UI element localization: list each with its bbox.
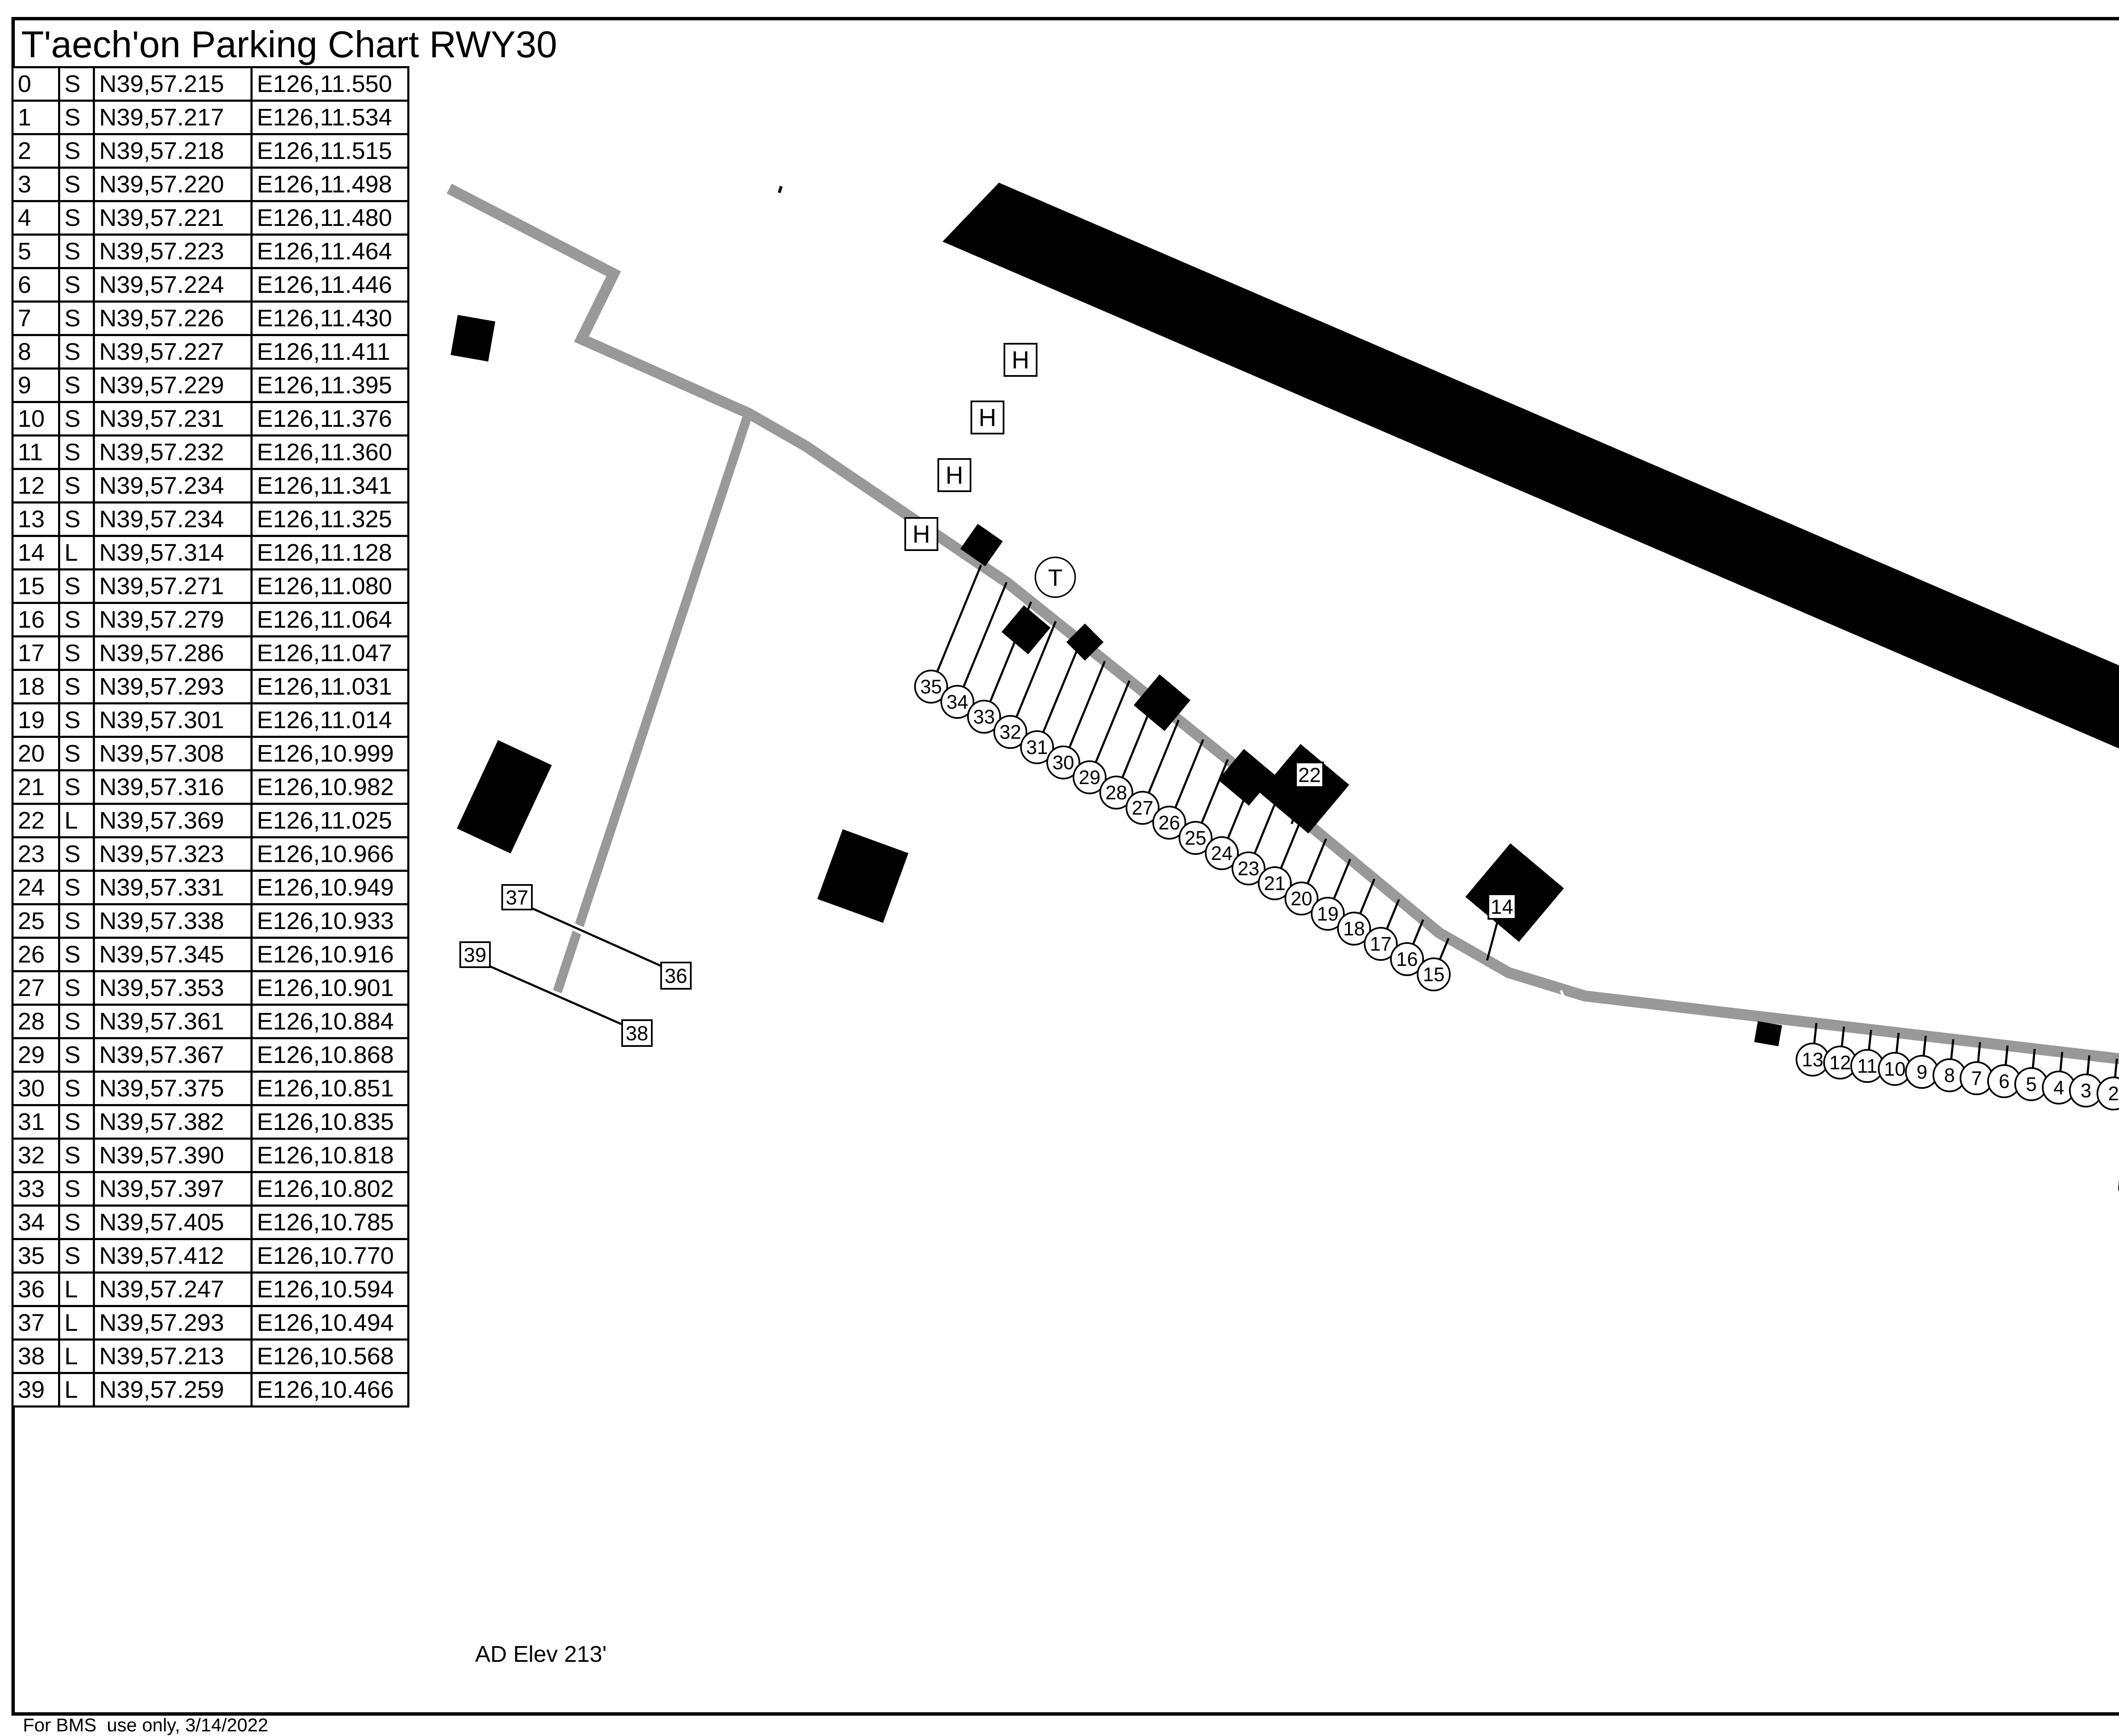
spot-id-cell: 26	[13, 938, 59, 971]
spot-type-cell: L	[59, 536, 94, 570]
table-row: 29SN39,57.367E126,10.868	[13, 1038, 409, 1072]
spot-id-cell: 14	[13, 536, 59, 570]
spot-id-cell: 12	[13, 469, 59, 503]
spot-type-cell: S	[59, 402, 94, 436]
table-row: 34SN39,57.405E126,10.785	[13, 1206, 409, 1239]
parking-spot-number: 17	[1370, 933, 1391, 955]
longitude-cell: E126,10.770	[252, 1239, 409, 1273]
helipad-letter: H	[912, 520, 930, 548]
parking-spot-number: 33	[973, 706, 995, 728]
spot-type-cell: S	[59, 235, 94, 268]
parking-spot-number: 31	[1026, 736, 1048, 758]
spot-id-cell: 35	[13, 1239, 59, 1273]
longitude-cell: E126,11.395	[252, 369, 409, 402]
spot-id-cell: 6	[13, 268, 59, 302]
longitude-cell: E126,11.464	[252, 235, 409, 268]
parking-spot-number: 18	[1343, 918, 1365, 940]
spot-type-cell: S	[59, 335, 94, 369]
longitude-cell: E126,10.949	[252, 871, 409, 904]
spot-id-cell: 27	[13, 971, 59, 1005]
spot-id-cell: 9	[13, 369, 59, 402]
building	[457, 740, 552, 854]
parking-spot-number: 35	[920, 676, 942, 698]
table-row: 33SN39,57.397E126,10.802	[13, 1172, 409, 1206]
parking-spot-number: 2	[2108, 1082, 2119, 1104]
table-row: 39LN39,57.259E126,10.466	[13, 1373, 409, 1407]
taxiway-tick	[1536, 988, 1543, 1001]
longitude-cell: E126,11.515	[252, 134, 409, 168]
latitude-cell: N39,57.232	[94, 436, 252, 469]
parking-spot-number: 13	[1802, 1049, 1823, 1071]
page-title: T'aech'on Parking Chart RWY30	[21, 23, 557, 66]
longitude-cell: E126,11.411	[252, 335, 409, 369]
parking-spot-number: 23	[1237, 857, 1259, 879]
latitude-cell: N39,57.229	[94, 369, 252, 402]
building	[450, 315, 495, 362]
spot-id-cell: 22	[13, 804, 59, 837]
spot-type-cell: S	[59, 1239, 94, 1273]
parking-spot-number: 30	[1052, 751, 1074, 773]
longitude-cell: E126,11.031	[252, 670, 409, 704]
longitude-cell: E126,10.835	[252, 1105, 409, 1139]
parking-spot-number: 25	[1185, 827, 1206, 849]
parking-spot-number: 27	[1132, 797, 1153, 819]
latitude-cell: N39,57.215	[94, 67, 252, 101]
table-row: 35SN39,57.412E126,10.770	[13, 1239, 409, 1273]
latitude-cell: N39,57.279	[94, 603, 252, 637]
taxiway-branch	[557, 413, 748, 992]
latitude-cell: N39,57.224	[94, 268, 252, 302]
spot-type-cell: S	[59, 971, 94, 1005]
helipad-letter: H	[1012, 346, 1029, 374]
latitude-cell: N39,57.345	[94, 938, 252, 971]
spot-type-cell: S	[59, 369, 94, 402]
parking-spot-number: 24	[1211, 842, 1232, 864]
spot-type-cell: L	[59, 804, 94, 837]
parking-spot-number: 7	[1971, 1067, 1982, 1089]
table-row: 27SN39,57.353E126,10.901	[13, 971, 409, 1005]
table-row: 31SN39,57.382E126,10.835	[13, 1105, 409, 1139]
parking-spot-number: 3	[2080, 1079, 2091, 1102]
spot-id-cell: 30	[13, 1072, 59, 1105]
table-row: 5SN39,57.223E126,11.464	[13, 235, 409, 268]
spot-id-cell: 31	[13, 1105, 59, 1139]
spot-id-cell: 20	[13, 737, 59, 771]
footer-note: For BMS use only, 3/14/2022	[23, 1715, 268, 1736]
spot-label-text: 22	[1298, 764, 1321, 787]
longitude-cell: E126,11.550	[252, 67, 409, 101]
spot-type-cell: S	[59, 771, 94, 804]
table-row: 24SN39,57.331E126,10.949	[13, 871, 409, 904]
longitude-cell: E126,10.785	[252, 1206, 409, 1239]
parking-spot-number: 21	[1264, 872, 1285, 894]
latitude-cell: N39,57.314	[94, 536, 252, 570]
longitude-cell: E126,11.325	[252, 503, 409, 536]
table-row: 4SN39,57.221E126,11.480	[13, 201, 409, 235]
longitude-cell: E126,10.868	[252, 1038, 409, 1072]
latitude-cell: N39,57.367	[94, 1038, 252, 1072]
table-row: 10SN39,57.231E126,11.376	[13, 402, 409, 436]
longitude-cell: E126,11.498	[252, 168, 409, 201]
latitude-cell: N39,57.308	[94, 737, 252, 771]
spot-id-cell: 19	[13, 704, 59, 737]
latitude-cell: N39,57.338	[94, 904, 252, 938]
table-row: 25SN39,57.338E126,10.933	[13, 904, 409, 938]
parking-spot-number: 8	[1944, 1064, 1955, 1086]
spot-type-cell: S	[59, 101, 94, 134]
latitude-cell: N39,57.323	[94, 837, 252, 871]
spot-id-cell: 16	[13, 603, 59, 637]
helipad-letter: H	[979, 404, 996, 431]
latitude-cell: N39,57.220	[94, 168, 252, 201]
ad-elev-label: AD Elev 213'	[475, 1641, 606, 1667]
latitude-cell: N39,57.217	[94, 101, 252, 134]
latitude-cell: N39,57.293	[94, 670, 252, 704]
spot-id-cell: 5	[13, 235, 59, 268]
spot-type-cell: S	[59, 871, 94, 904]
latitude-cell: N39,57.390	[94, 1139, 252, 1172]
longitude-cell: E126,10.802	[252, 1172, 409, 1206]
spot-id-cell: 8	[13, 335, 59, 369]
table-row: 0SN39,57.215E126,11.550	[13, 67, 409, 101]
longitude-cell: E126,11.534	[252, 101, 409, 134]
spot-id-cell: 11	[13, 436, 59, 469]
spot-type-cell: S	[59, 670, 94, 704]
spot-id-cell: 18	[13, 670, 59, 704]
longitude-cell: E126,10.818	[252, 1139, 409, 1172]
parking-spot-number: 28	[1105, 782, 1127, 804]
spot-type-cell: S	[59, 1005, 94, 1038]
parking-spot-number: 5	[2026, 1073, 2037, 1095]
latitude-cell: N39,57.227	[94, 335, 252, 369]
spot-id-cell: 2	[13, 134, 59, 168]
spot-label-text: 37	[506, 887, 528, 909]
table-row: 7SN39,57.226E126,11.430	[13, 302, 409, 335]
spot-type-cell: S	[59, 436, 94, 469]
latitude-cell: N39,57.397	[94, 1172, 252, 1206]
longitude-cell: E126,11.376	[252, 402, 409, 436]
table-row: 21SN39,57.316E126,10.982	[13, 771, 409, 804]
table-row: 18SN39,57.293E126,11.031	[13, 670, 409, 704]
longitude-cell: E126,10.568	[252, 1340, 409, 1373]
longitude-cell: E126,11.014	[252, 704, 409, 737]
spot-type-cell: S	[59, 168, 94, 201]
table-row: 12SN39,57.234E126,11.341	[13, 469, 409, 503]
building	[818, 829, 909, 923]
latitude-cell: N39,57.316	[94, 771, 252, 804]
parking-spot-number: 20	[1290, 887, 1312, 910]
parking-spot-number: 15	[1423, 963, 1444, 985]
longitude-cell: E126,11.360	[252, 436, 409, 469]
spot-type-cell: S	[59, 302, 94, 335]
parking-spot-leader	[957, 582, 1007, 702]
spot-id-cell: 33	[13, 1172, 59, 1206]
spot-id-cell: 1	[13, 101, 59, 134]
table-row: 26SN39,57.345E126,10.916	[13, 938, 409, 971]
longitude-cell: E126,11.080	[252, 570, 409, 603]
latitude-cell: N39,57.234	[94, 503, 252, 536]
spot-type-cell: S	[59, 1206, 94, 1239]
table-row: 14LN39,57.314E126,11.128	[13, 536, 409, 570]
longitude-cell: E126,11.047	[252, 637, 409, 670]
spot-id-cell: 0	[13, 67, 59, 101]
spot-type-cell: L	[59, 1373, 94, 1407]
longitude-cell: E126,10.851	[252, 1072, 409, 1105]
chart-page: 2792 X 49 M221437363938HHHHT353433323130…	[0, 0, 2119, 1736]
longitude-cell: E126,10.933	[252, 904, 409, 938]
table-row: 9SN39,57.229E126,11.395	[13, 369, 409, 402]
table-row: 22LN39,57.369E126,11.025	[13, 804, 409, 837]
spot-type-cell: S	[59, 67, 94, 101]
spot-label-leader	[1487, 919, 1498, 960]
latitude-cell: N39,57.231	[94, 402, 252, 436]
longitude-cell: E126,11.025	[252, 804, 409, 837]
helipad-letter: H	[945, 462, 963, 489]
spot-type-cell: S	[59, 1139, 94, 1172]
spot-type-cell: S	[59, 637, 94, 670]
spot-id-cell: 13	[13, 503, 59, 536]
spot-type-cell: S	[59, 737, 94, 771]
spot-label-text: 39	[464, 944, 486, 967]
parking-spot-number: 6	[1999, 1070, 2010, 1092]
latitude-cell: N39,57.234	[94, 469, 252, 503]
spot-type-cell: S	[59, 837, 94, 871]
parking-spot-number: 11	[1857, 1055, 1877, 1077]
label-pair-line	[490, 966, 623, 1025]
spot-id-cell: 36	[13, 1273, 59, 1306]
spot-type-cell: L	[59, 1340, 94, 1373]
latitude-cell: N39,57.218	[94, 134, 252, 168]
latitude-cell: N39,57.247	[94, 1273, 252, 1306]
spot-id-cell: 7	[13, 302, 59, 335]
spot-type-cell: S	[59, 704, 94, 737]
table-row: 1SN39,57.217E126,11.534	[13, 101, 409, 134]
table-row: 30SN39,57.375E126,10.851	[13, 1072, 409, 1105]
latitude-cell: N39,57.301	[94, 704, 252, 737]
table-row: 17SN39,57.286E126,11.047	[13, 637, 409, 670]
parking-spot-number: 26	[1158, 812, 1180, 834]
longitude-cell: E126,11.480	[252, 201, 409, 235]
table-row: 2SN39,57.218E126,11.515	[13, 134, 409, 168]
longitude-cell: E126,10.999	[252, 737, 409, 771]
latitude-cell: N39,57.361	[94, 1005, 252, 1038]
table-row: 19SN39,57.301E126,11.014	[13, 704, 409, 737]
building	[1466, 843, 1564, 942]
longitude-cell: E126,10.884	[252, 1005, 409, 1038]
longitude-cell: E126,11.341	[252, 469, 409, 503]
spot-id-cell: 24	[13, 871, 59, 904]
table-row: 28SN39,57.361E126,10.884	[13, 1005, 409, 1038]
longitude-cell: E126,10.916	[252, 938, 409, 971]
table-row: 38LN39,57.213E126,10.568	[13, 1340, 409, 1373]
spot-type-cell: S	[59, 938, 94, 971]
table-row: 36LN39,57.247E126,10.594	[13, 1273, 409, 1306]
parking-spot-number: 34	[946, 691, 968, 713]
longitude-cell: E126,10.966	[252, 837, 409, 871]
parking-spot-number: 29	[1079, 766, 1100, 788]
spot-id-cell: 38	[13, 1340, 59, 1373]
latitude-cell: N39,57.213	[94, 1340, 252, 1373]
longitude-cell: E126,10.494	[252, 1306, 409, 1340]
building	[1754, 1021, 1782, 1046]
parking-spot-number: 4	[2053, 1077, 2064, 1099]
spot-id-cell: 25	[13, 904, 59, 938]
spot-type-cell: S	[59, 134, 94, 168]
parking-spot-number: 32	[999, 721, 1021, 743]
spot-type-cell: S	[59, 503, 94, 536]
parking-spot-leader	[1037, 641, 1081, 747]
latitude-cell: N39,57.221	[94, 201, 252, 235]
spot-id-cell: 28	[13, 1005, 59, 1038]
table-row: 23SN39,57.323E126,10.966	[13, 837, 409, 871]
spot-type-cell: L	[59, 1306, 94, 1340]
spot-type-cell: S	[59, 201, 94, 235]
spot-id-cell: 37	[13, 1306, 59, 1340]
parking-spot-number: 12	[1829, 1052, 1851, 1074]
latitude-cell: N39,57.331	[94, 871, 252, 904]
spot-label-text: 38	[626, 1023, 648, 1045]
spot-id-cell: 15	[13, 570, 59, 603]
latitude-cell: N39,57.375	[94, 1072, 252, 1105]
table-row: 15SN39,57.271E126,11.080	[13, 570, 409, 603]
longitude-cell: E126,10.466	[252, 1373, 409, 1407]
longitude-cell: E126,10.594	[252, 1273, 409, 1306]
spot-id-cell: 17	[13, 637, 59, 670]
table-row: 13SN39,57.234E126,11.325	[13, 503, 409, 536]
building	[1260, 744, 1349, 833]
latitude-cell: N39,57.369	[94, 804, 252, 837]
longitude-cell: E126,11.430	[252, 302, 409, 335]
spot-label-text: 36	[665, 965, 687, 988]
table-row: 16SN39,57.279E126,11.064	[13, 603, 409, 637]
longitude-cell: E126,10.982	[252, 771, 409, 804]
spot-id-cell: 3	[13, 168, 59, 201]
spot-type-cell: S	[59, 1038, 94, 1072]
label-pair-line	[532, 908, 662, 966]
parking-spot-number: 9	[1916, 1061, 1927, 1083]
spot-label-text: 14	[1491, 896, 1513, 918]
spot-id-cell: 32	[13, 1139, 59, 1172]
spot-type-cell: S	[59, 904, 94, 938]
table-row: 8SN39,57.227E126,11.411	[13, 335, 409, 369]
spot-id-cell: 23	[13, 837, 59, 871]
latitude-cell: N39,57.226	[94, 302, 252, 335]
spot-id-cell: 10	[13, 402, 59, 436]
stray-mark	[778, 186, 783, 193]
table-row: 37LN39,57.293E126,10.494	[13, 1306, 409, 1340]
spot-type-cell: S	[59, 1072, 94, 1105]
latitude-cell: N39,57.271	[94, 570, 252, 603]
spot-id-cell: 39	[13, 1373, 59, 1407]
table-row: 3SN39,57.220E126,11.498	[13, 168, 409, 201]
spot-type-cell: S	[59, 1105, 94, 1139]
latitude-cell: N39,57.405	[94, 1206, 252, 1239]
longitude-cell: E126,10.901	[252, 971, 409, 1005]
table-row: 20SN39,57.308E126,10.999	[13, 737, 409, 771]
spot-type-cell: S	[59, 268, 94, 302]
longitude-cell: E126,11.446	[252, 268, 409, 302]
parking-spot-number: 10	[1884, 1058, 1905, 1080]
spot-type-cell: S	[59, 469, 94, 503]
latitude-cell: N39,57.223	[94, 235, 252, 268]
latitude-cell: N39,57.286	[94, 637, 252, 670]
parking-spot-leader	[931, 565, 981, 687]
longitude-cell: E126,11.128	[252, 536, 409, 570]
parking-spot-number: 16	[1396, 948, 1418, 970]
spot-type-cell: S	[59, 603, 94, 637]
spot-id-cell: 29	[13, 1038, 59, 1072]
latitude-cell: N39,57.293	[94, 1306, 252, 1340]
latitude-cell: N39,57.382	[94, 1105, 252, 1139]
tower-letter: T	[1048, 564, 1062, 591]
spot-id-cell: 21	[13, 771, 59, 804]
table-row: 11SN39,57.232E126,11.360	[13, 436, 409, 469]
longitude-cell: E126,11.064	[252, 603, 409, 637]
spot-type-cell: L	[59, 1273, 94, 1306]
latitude-cell: N39,57.412	[94, 1239, 252, 1273]
spot-type-cell: S	[59, 570, 94, 603]
latitude-cell: N39,57.353	[94, 971, 252, 1005]
table-row: 32SN39,57.390E126,10.818	[13, 1139, 409, 1172]
table-row: 6SN39,57.224E126,11.446	[13, 268, 409, 302]
spot-id-cell: 4	[13, 201, 59, 235]
spot-id-cell: 34	[13, 1206, 59, 1239]
spot-type-cell: S	[59, 1172, 94, 1206]
parking-spot-number: 19	[1317, 903, 1338, 925]
latitude-cell: N39,57.259	[94, 1373, 252, 1407]
parking-table: 0SN39,57.215E126,11.5501SN39,57.217E126,…	[11, 66, 409, 1408]
